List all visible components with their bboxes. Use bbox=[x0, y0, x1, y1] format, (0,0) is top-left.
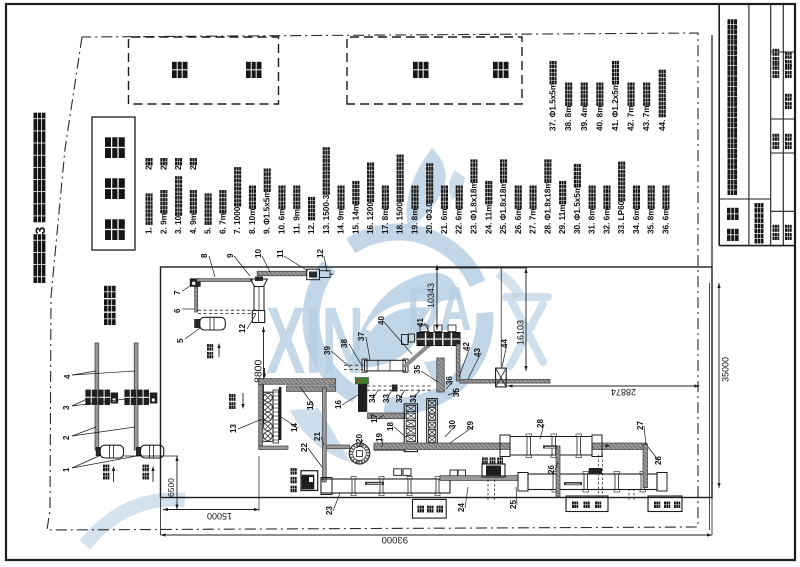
svg-text:16. 1200: 16. 1200 bbox=[366, 202, 375, 234]
svg-text:7. 1000: 7. 1000 bbox=[233, 206, 242, 234]
svg-text:27: 27 bbox=[636, 421, 645, 430]
svg-text:1.: 1. bbox=[145, 227, 154, 234]
svg-text:25. Φ1.8x18m: 25. Φ1.8x18m bbox=[499, 181, 508, 234]
svg-text:31. 8m: 31. 8m bbox=[588, 209, 597, 235]
svg-text:35: 35 bbox=[452, 388, 461, 397]
svg-text:10. 6m: 10. 6m bbox=[278, 209, 287, 235]
svg-text:23: 23 bbox=[325, 506, 334, 515]
svg-text:2: 2 bbox=[159, 165, 168, 170]
svg-text:34. 6m: 34. 6m bbox=[632, 209, 641, 235]
svg-text:20. Φ3.0: 20. Φ3.0 bbox=[425, 202, 434, 234]
svg-text:36: 36 bbox=[445, 376, 454, 385]
svg-text:10343: 10343 bbox=[426, 283, 436, 308]
svg-text:93000: 93000 bbox=[382, 534, 408, 545]
svg-text:40. 8m: 40. 8m bbox=[595, 106, 604, 132]
svg-text:2: 2 bbox=[62, 435, 71, 440]
svg-text:44.: 44. bbox=[658, 120, 667, 131]
svg-text:1: 1 bbox=[62, 467, 71, 472]
svg-text:30: 30 bbox=[448, 420, 457, 429]
svg-text:26: 26 bbox=[547, 465, 556, 474]
svg-text:3: 3 bbox=[62, 405, 71, 410]
svg-text:14. 9m: 14. 9m bbox=[337, 209, 346, 235]
svg-text:30. Φ1.5x5m: 30. Φ1.5x5m bbox=[573, 186, 582, 234]
svg-text:12: 12 bbox=[238, 324, 247, 333]
svg-text:8: 8 bbox=[200, 253, 209, 258]
svg-text:6: 6 bbox=[173, 308, 182, 313]
svg-text:42: 42 bbox=[462, 342, 471, 351]
svg-text:17. 8m: 17. 8m bbox=[381, 209, 390, 235]
svg-text:2: 2 bbox=[189, 165, 198, 170]
svg-text:22. 6m: 22. 6m bbox=[455, 209, 464, 235]
svg-text:2: 2 bbox=[174, 165, 183, 170]
svg-text:2: 2 bbox=[145, 165, 154, 170]
svg-text:18. 1500: 18. 1500 bbox=[396, 202, 405, 234]
svg-text:27. 7m: 27. 7m bbox=[529, 209, 538, 235]
svg-text:21. 6m: 21. 6m bbox=[440, 209, 449, 235]
svg-text:35000: 35000 bbox=[721, 357, 731, 382]
svg-text:XIN: XIN bbox=[266, 286, 364, 393]
svg-text:15. 14m: 15. 14m bbox=[351, 204, 360, 234]
svg-text:24. 11m: 24. 11m bbox=[484, 204, 493, 234]
svg-text:32. 6m: 32. 6m bbox=[602, 209, 611, 235]
svg-text:28: 28 bbox=[536, 419, 545, 428]
svg-text:16: 16 bbox=[334, 400, 343, 409]
svg-text:5: 5 bbox=[176, 338, 185, 343]
svg-text:34: 34 bbox=[368, 394, 377, 403]
svg-text:33: 33 bbox=[382, 394, 391, 403]
svg-text:26. 6m: 26. 6m bbox=[514, 209, 523, 235]
svg-text:13. 1500-3: 13. 1500-3 bbox=[322, 194, 331, 234]
svg-text:4. 9m: 4. 9m bbox=[189, 213, 198, 234]
svg-text:29. 11m: 29. 11m bbox=[558, 204, 567, 234]
svg-text:28. Φ1.8x18m: 28. Φ1.8x18m bbox=[543, 181, 552, 234]
svg-text:11. 9m: 11. 9m bbox=[292, 209, 301, 234]
svg-text:7: 7 bbox=[173, 290, 182, 295]
svg-text:33. LP60: 33. LP60 bbox=[617, 200, 626, 234]
svg-text:43. 7m: 43. 7m bbox=[642, 106, 651, 132]
svg-text:3: 3 bbox=[33, 226, 48, 234]
svg-text:20: 20 bbox=[355, 434, 364, 443]
svg-text:6500: 6500 bbox=[166, 478, 176, 497]
svg-text:4: 4 bbox=[63, 374, 72, 379]
svg-text:15000: 15000 bbox=[207, 511, 232, 521]
svg-text:9. Φ1.5x5m: 9. Φ1.5x5m bbox=[263, 190, 272, 234]
svg-text:35: 35 bbox=[413, 365, 422, 374]
svg-text:2. 9m: 2. 9m bbox=[159, 213, 168, 234]
svg-text:37: 37 bbox=[357, 332, 366, 341]
svg-text:38: 38 bbox=[340, 339, 349, 348]
svg-text:44: 44 bbox=[500, 339, 509, 348]
svg-text:38. 8m: 38. 8m bbox=[564, 106, 573, 132]
svg-text:23. Φ1.8x18m: 23. Φ1.8x18m bbox=[470, 181, 479, 234]
svg-text:43: 43 bbox=[473, 348, 482, 357]
svg-text:41: 41 bbox=[416, 318, 425, 327]
svg-text:10: 10 bbox=[254, 249, 263, 258]
svg-text:37. Φ1.5x5m: 37. Φ1.5x5m bbox=[549, 83, 558, 131]
svg-text:40: 40 bbox=[377, 316, 386, 325]
svg-text:22: 22 bbox=[300, 443, 309, 452]
svg-text:11: 11 bbox=[276, 249, 285, 258]
svg-text:12.: 12. bbox=[307, 223, 316, 234]
svg-text:13: 13 bbox=[229, 424, 238, 433]
svg-text:39. 4m: 39. 4m bbox=[580, 106, 589, 132]
svg-text:8. 10m: 8. 10m bbox=[248, 209, 257, 235]
svg-text:6. 7m: 6. 7m bbox=[218, 213, 227, 234]
svg-text:9: 9 bbox=[226, 253, 235, 258]
svg-text:39: 39 bbox=[323, 346, 332, 355]
svg-text:42. 7m: 42. 7m bbox=[627, 106, 636, 132]
svg-text:17: 17 bbox=[370, 414, 379, 423]
svg-text:5.: 5. bbox=[204, 227, 213, 234]
svg-text:19. 8m: 19. 8m bbox=[410, 209, 419, 235]
svg-text:21: 21 bbox=[313, 432, 322, 441]
svg-text:35. 8m: 35. 8m bbox=[647, 209, 656, 235]
svg-text:28874: 28874 bbox=[611, 387, 636, 397]
svg-text:41. Φ1.2x5m: 41. Φ1.2x5m bbox=[611, 83, 620, 131]
svg-text:3. 10: 3. 10 bbox=[174, 215, 183, 234]
svg-text:16103: 16103 bbox=[516, 320, 526, 345]
svg-text:36. 6m: 36. 6m bbox=[662, 209, 671, 235]
svg-text:18: 18 bbox=[386, 422, 395, 431]
